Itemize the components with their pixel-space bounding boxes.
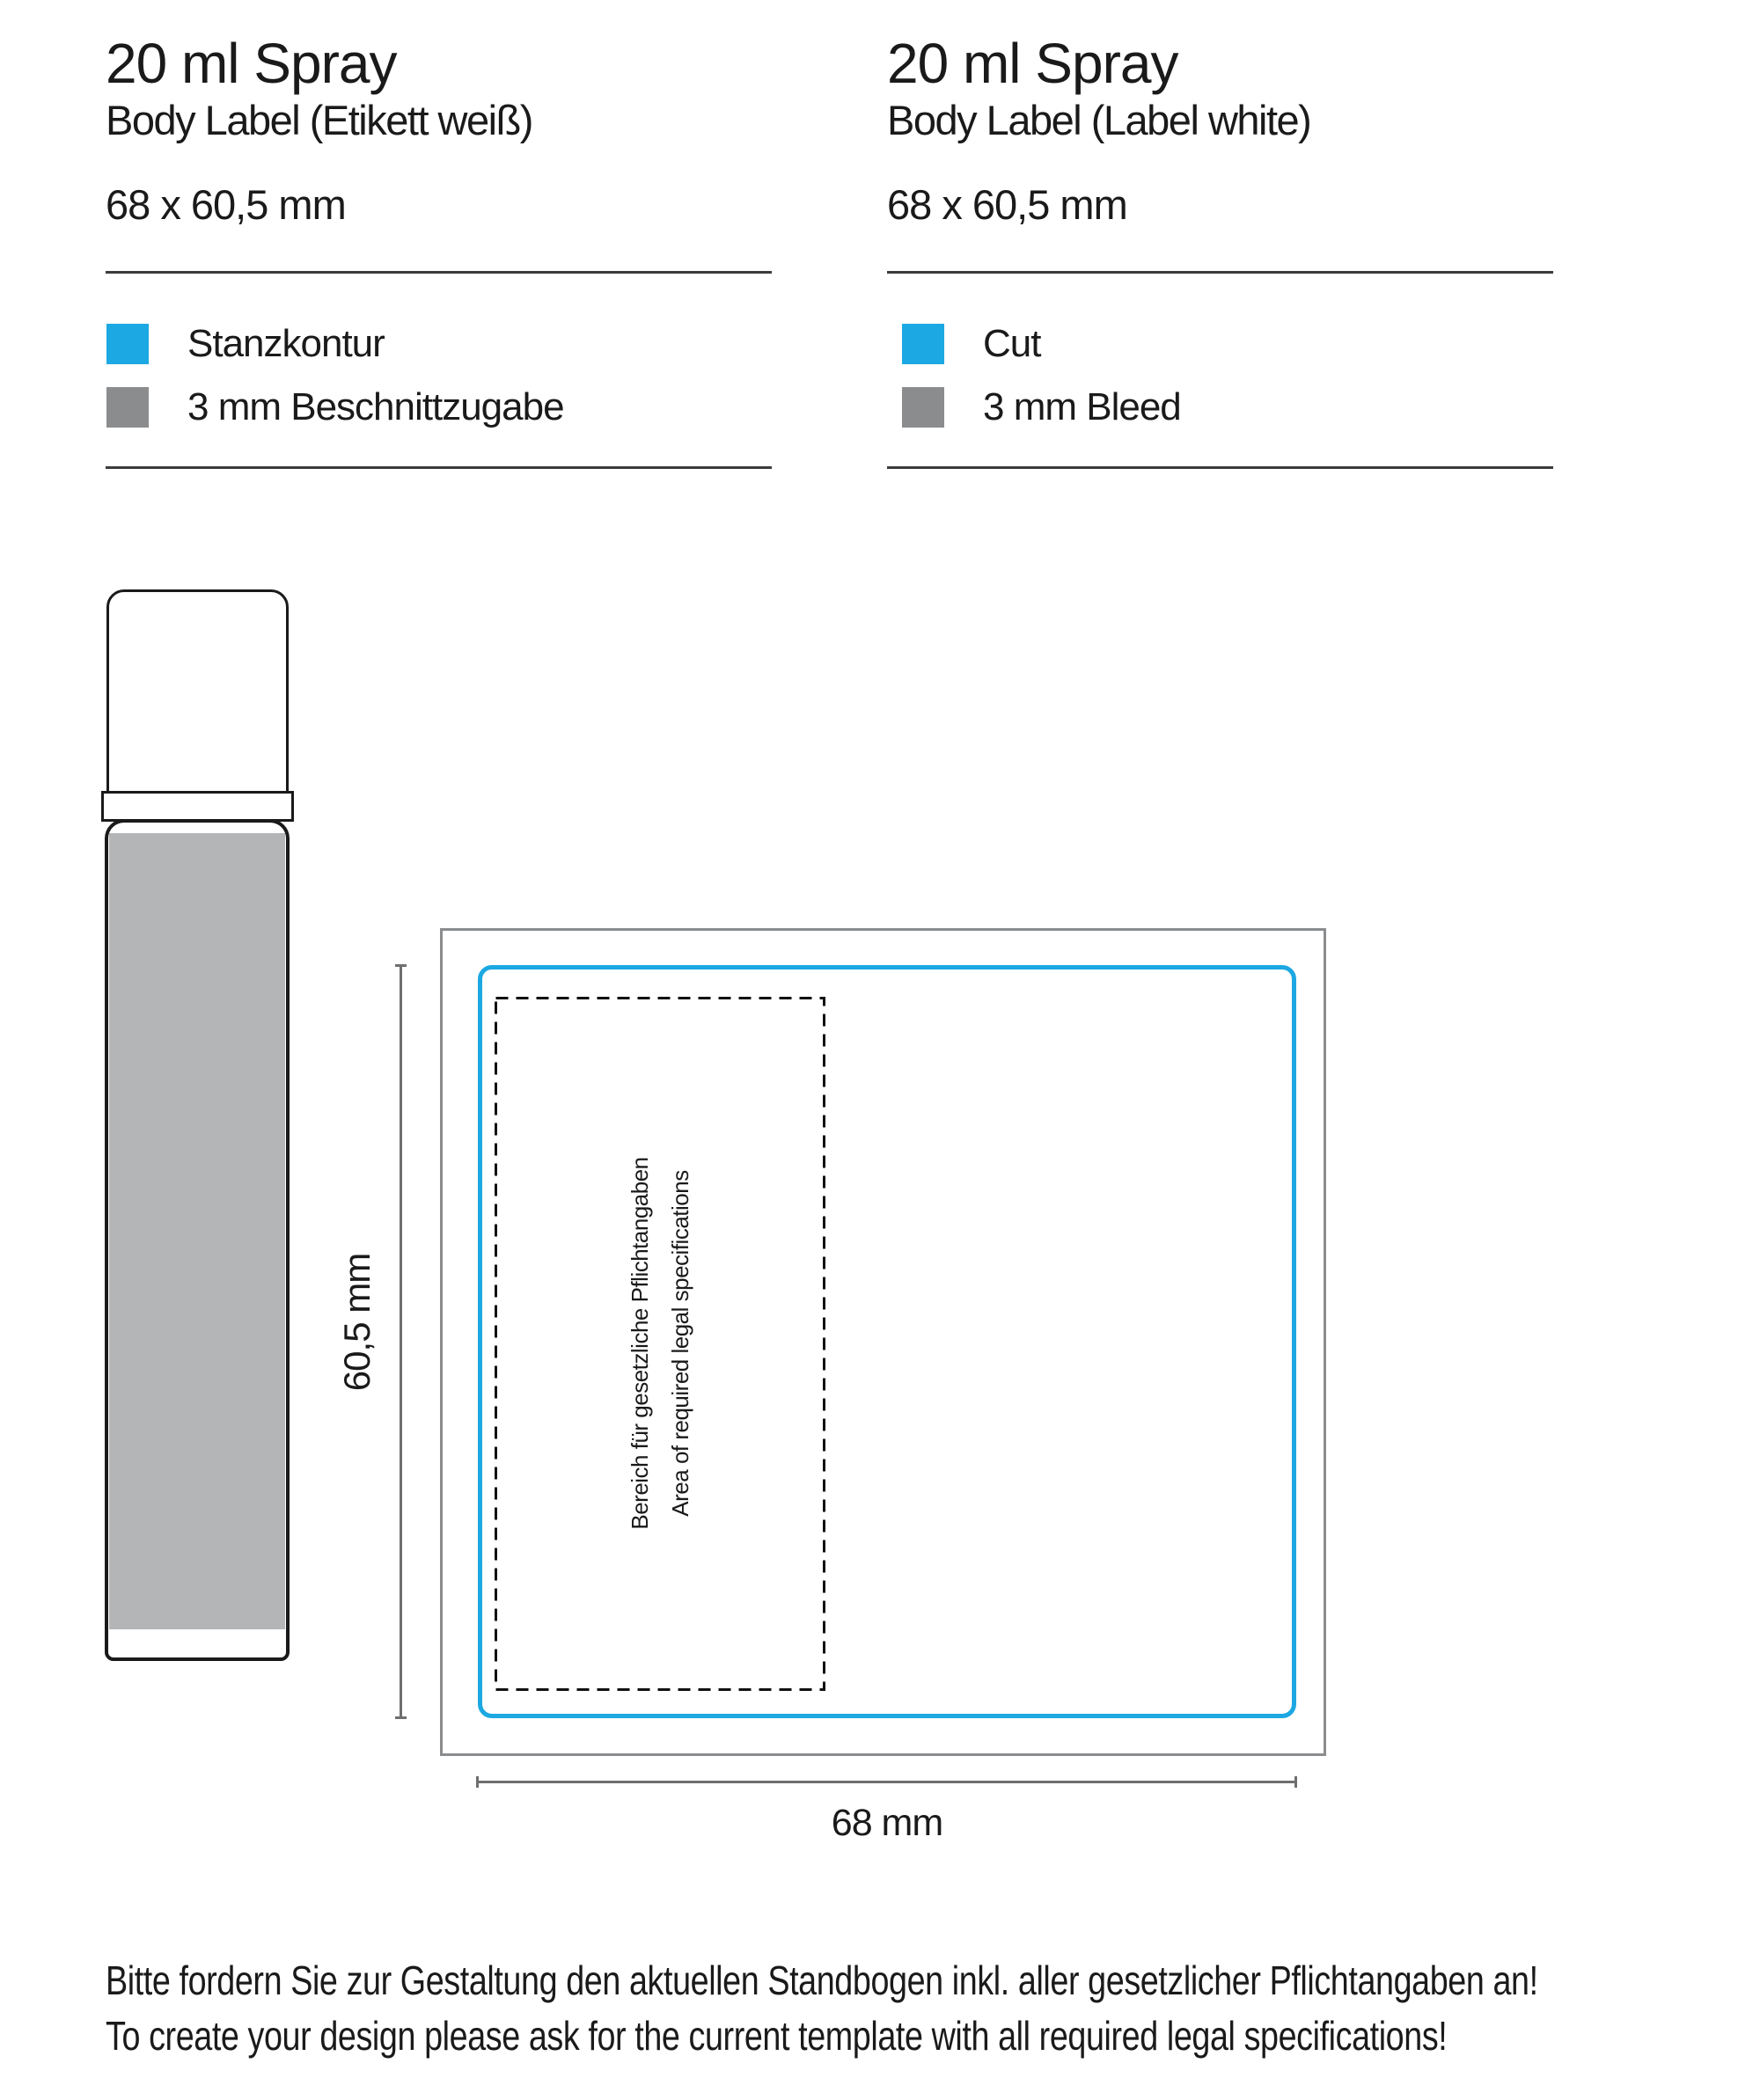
dimension-tick xyxy=(395,964,407,967)
bleed-color-swatch xyxy=(106,387,149,428)
cut-color-swatch xyxy=(902,324,944,364)
template-page: 20 ml Spray Body Label (Etikett weiß) 68… xyxy=(0,0,1760,2100)
label-dimensions-de: 68 x 60,5 mm xyxy=(106,180,346,230)
legend-item-bleed-en: 3 mm Bleed xyxy=(902,385,1181,429)
product-subtitle-en: Body Label (Label white) xyxy=(887,95,1310,146)
legend-label-cut-en: Cut xyxy=(983,322,1040,366)
legal-area-line-de: Bereich für gesetzliche Pflichtangaben xyxy=(620,1157,660,1529)
divider-rule xyxy=(887,466,1553,469)
footer-line-en: To create your design please ask for the… xyxy=(106,2009,1538,2064)
legend-item-bleed-de: 3 mm Beschnittzugabe xyxy=(106,385,564,429)
divider-rule xyxy=(887,271,1553,274)
header-right-column: 20 ml Spray Body Label (Label white) xyxy=(887,32,1310,146)
legal-area-line-en: Area of required legal specifications xyxy=(660,1157,700,1529)
footer-note: Bitte fordern Sie zur Gestaltung den akt… xyxy=(106,1953,1538,2064)
dimension-tick xyxy=(476,1776,479,1788)
product-title-de: 20 ml Spray xyxy=(106,32,532,95)
legend-label-bleed-en: 3 mm Bleed xyxy=(983,385,1181,429)
width-dimension-line xyxy=(477,1781,1297,1783)
legend-label-cut-de: Stanzkontur xyxy=(187,322,385,366)
legend-item-cut-en: Cut xyxy=(902,322,1040,366)
label-dimensions-en: 68 x 60,5 mm xyxy=(887,180,1127,230)
bottle-label-area xyxy=(109,833,285,1629)
cut-color-swatch xyxy=(106,324,149,364)
header-left-column: 20 ml Spray Body Label (Etikett weiß) xyxy=(106,32,532,146)
product-title-en: 20 ml Spray xyxy=(887,32,1310,95)
legal-area-text: Bereich für gesetzliche Pflichtangaben A… xyxy=(620,1157,700,1529)
width-dimension-label: 68 mm xyxy=(477,1802,1297,1845)
divider-rule xyxy=(106,466,772,469)
bottle-cap xyxy=(106,589,289,794)
legend-item-cut-de: Stanzkontur xyxy=(106,322,385,366)
bottle-collar xyxy=(101,791,294,822)
dimension-tick xyxy=(1294,1776,1297,1788)
bleed-color-swatch xyxy=(902,387,944,428)
divider-rule xyxy=(106,271,772,274)
dimension-tick xyxy=(395,1716,407,1719)
footer-line-de: Bitte fordern Sie zur Gestaltung den akt… xyxy=(106,1953,1538,2009)
height-dimension-label: 60,5 mm xyxy=(336,1254,378,1391)
legend-label-bleed-de: 3 mm Beschnittzugabe xyxy=(187,385,564,429)
height-dimension-line xyxy=(400,965,402,1718)
product-subtitle-de: Body Label (Etikett weiß) xyxy=(106,95,532,146)
